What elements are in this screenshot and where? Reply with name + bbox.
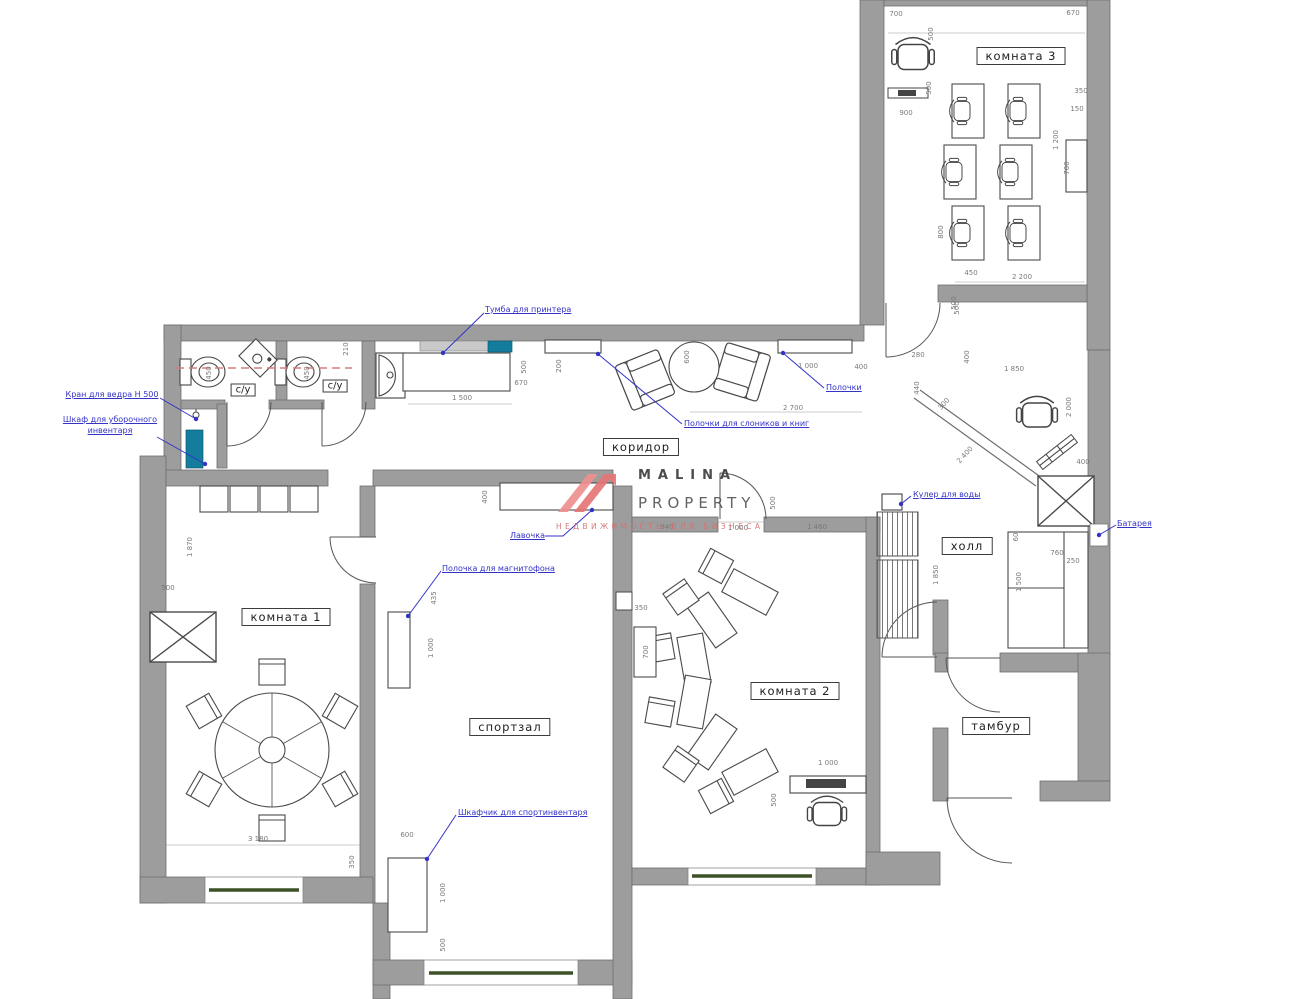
floorplan-page: комната 3с/ус/укоридоркомната 1спортзалк… [0,0,1301,999]
teacher-desk [790,776,866,826]
pedestal-sink-icon [376,353,405,398]
hall-diagonal-wall [914,390,1042,486]
sports-equipment-cabinet [388,858,427,932]
room2-desk-crescent [645,548,778,813]
malina-logo-icon [556,464,622,516]
leader-dot [203,462,207,466]
keyboard-icon [1037,435,1078,470]
watermark-line1: MALINA [638,468,856,483]
bucket-faucet-icon [193,409,199,418]
leader-dot [425,857,429,861]
round-table-with-chairs [186,659,358,841]
hall-crossed-cabinet [1038,476,1094,526]
cleaning-cabinet [186,430,203,468]
room1-cabinets [200,486,318,512]
round-side-table [669,342,719,392]
shaft-box [150,612,216,662]
lounge-armchairs [615,342,771,411]
leader-dot [596,352,600,356]
leader-dot [194,417,198,421]
leader-line [783,353,824,388]
leader-dot [781,351,785,355]
leader-line [408,571,441,616]
room3-furniture [888,38,1087,260]
corner-sink-icon [239,339,277,377]
leader-dot [441,351,445,355]
leader-line [427,815,456,859]
printer-stand [488,341,512,352]
corridor-bench [403,353,510,391]
shelves [778,340,852,353]
hall-cabinet [1008,532,1088,648]
printer-stand-shelf [420,341,490,351]
room2-wall-shelf [634,627,656,677]
leader-dot [406,614,410,618]
watermark-line2: PROPERTY [638,494,856,512]
watermark: MALINA PROPERTY НЕДВИЖИМОСТЬ ДЛЯ БИЗНЕСА [556,464,856,531]
hall-wardrobe [877,512,918,638]
windows [205,868,816,985]
leader-dot [1097,533,1101,537]
tape-recorder-shelf [388,612,410,688]
watermark-subtitle: НЕДВИЖИМОСТЬ ДЛЯ БИЗНЕСА [556,522,856,531]
hall-office-chair [1017,396,1058,427]
small-shelf [616,592,632,610]
elephant-book-shelf [545,340,601,353]
water-cooler [882,494,902,510]
leader-dot [899,502,903,506]
